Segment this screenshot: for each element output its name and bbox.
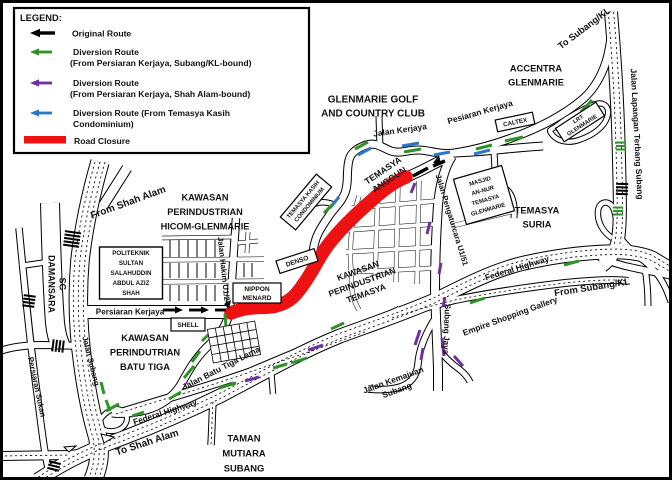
svg-text:SHELL: SHELL: [177, 322, 198, 329]
svg-text:KAWASAN: KAWASAN: [121, 333, 169, 343]
svg-text:LEGEND:: LEGEND:: [20, 13, 62, 23]
svg-text:SALAHUDDIN: SALAHUDDIN: [111, 270, 152, 277]
svg-text:MENARD: MENARD: [243, 295, 272, 302]
svg-text:Diversion Route: Diversion Route: [73, 78, 139, 88]
svg-text:NIPPON: NIPPON: [244, 286, 270, 293]
svg-text:POLITEKNIK: POLITEKNIK: [112, 250, 150, 257]
svg-text:SURIA: SURIA: [523, 219, 552, 229]
svg-text:SUBANG: SUBANG: [224, 462, 265, 473]
svg-text:HICOM-GLENMARIE: HICOM-GLENMARIE: [161, 222, 250, 232]
svg-text:SHAH: SHAH: [122, 290, 140, 297]
svg-text:TEMASYA: TEMASYA: [515, 205, 560, 215]
svg-text:Diversion Route: Diversion Route: [73, 47, 139, 57]
svg-text:DAMANSARA: DAMANSARA: [46, 255, 56, 313]
svg-text:Road Closure: Road Closure: [74, 136, 130, 146]
svg-text:(From Persiaran Kerjaya, Shah: (From Persiaran Kerjaya, Shah Alam-bound…: [70, 89, 250, 99]
svg-text:Persiaran Kerjaya: Persiaran Kerjaya: [96, 307, 165, 316]
svg-text:GLENMARIE GOLF: GLENMARIE GOLF: [328, 95, 419, 106]
svg-text:Subang Jaya: Subang Jaya: [441, 304, 452, 355]
svg-text:AND COUNTRY CLUB: AND COUNTRY CLUB: [321, 109, 425, 120]
svg-text:MUTIARA: MUTIARA: [222, 447, 265, 458]
svg-text:(From Persiaran Kerjaya, Suban: (From Persiaran Kerjaya, Subang/KL-bound…: [70, 58, 252, 68]
svg-text:PERINDUSTRIAN: PERINDUSTRIAN: [167, 207, 243, 217]
svg-text:ACCENTRA: ACCENTRA: [510, 63, 562, 73]
svg-text:Diversion Route (From Temasya: Diversion Route (From Temasya Kasih: [73, 108, 230, 118]
svg-text:ABDUL AZIZ: ABDUL AZIZ: [113, 280, 150, 287]
svg-text:SULTAN: SULTAN: [119, 260, 144, 267]
svg-text:Original Route: Original Route: [72, 29, 131, 39]
svg-text:BATU TIGA: BATU TIGA: [120, 362, 170, 372]
svg-text:KAWASAN: KAWASAN: [182, 193, 229, 203]
svg-text:TAMAN: TAMAN: [227, 432, 260, 443]
svg-text:PERINDUTRIAN: PERINDUTRIAN: [110, 347, 181, 357]
svg-text:Condominium): Condominium): [73, 119, 134, 129]
svg-text:SG: SG: [57, 278, 67, 291]
svg-text:GLENMARIE: GLENMARIE: [508, 77, 564, 87]
